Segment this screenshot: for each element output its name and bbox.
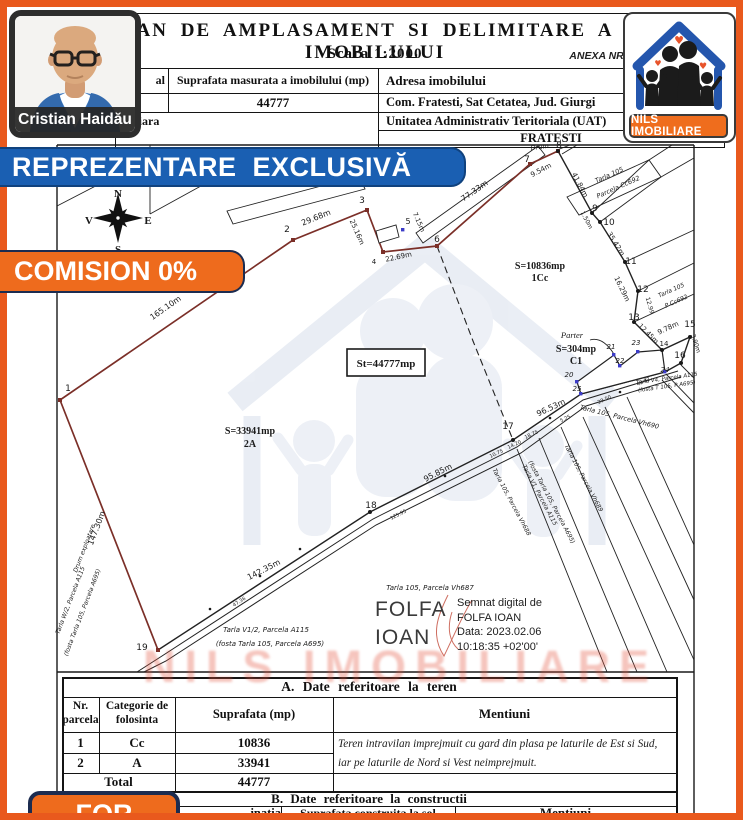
- plan-label: S=33941mp: [225, 426, 276, 437]
- plan-label: 11: [625, 257, 636, 267]
- plan-label: 7.15m: [411, 211, 427, 233]
- col-men-header: Mentiuni: [333, 699, 676, 729]
- plan-label: 18: [365, 501, 377, 511]
- plan-label: 1: [65, 384, 71, 394]
- listing-flyer: 1234567891011121314151617181920212223242…: [0, 0, 743, 820]
- col-nr-header: Nr.: [62, 699, 99, 713]
- plan-label: 12.99: [644, 296, 656, 315]
- signer-name-line2: IOAN: [375, 626, 430, 650]
- digital-signature-details: Semnat digital de FOLFA IOAN Data: 2023.…: [457, 596, 542, 654]
- row-parcel-area: 33941: [175, 753, 333, 773]
- brand-name: NILS IMOBILIARE: [629, 114, 728, 138]
- table-a-title: A. Date referitoare la teren: [62, 678, 676, 696]
- row-parcel-nr: 1: [62, 732, 99, 753]
- plan-label: 125.95: [389, 508, 407, 521]
- frame-bottom: [0, 813, 743, 820]
- carte-funciara-fragment: unciara: [115, 112, 380, 130]
- plan-label: 12: [637, 285, 648, 295]
- plan-label: 17: [502, 422, 513, 432]
- plan-label: 20: [565, 371, 574, 379]
- surface-value: 44777: [168, 93, 378, 112]
- plan-label: 35.42m: [605, 230, 626, 257]
- plan-label: 21: [607, 343, 616, 351]
- total-value: 44777: [175, 773, 333, 791]
- plan-label: (fosta Tarla 105, Parcela A695): [216, 640, 325, 648]
- svg-text:♥: ♥: [674, 34, 684, 47]
- plan-label: S=304mp: [556, 344, 597, 355]
- plan-label: 4: [372, 258, 377, 266]
- col-sup-header: Suprafata (mp): [175, 699, 333, 729]
- plan-label: C1: [570, 356, 582, 367]
- plan-label: 19: [136, 643, 148, 653]
- plan-label: 2: [284, 225, 290, 235]
- commission-banner: COMISION 0%: [0, 250, 245, 293]
- frame-left: [0, 0, 7, 820]
- compass-icon: [93, 193, 143, 243]
- signature-line: FOLFA IOAN: [457, 611, 542, 626]
- plan-label: Parter: [560, 330, 584, 340]
- plan-label: V: [85, 215, 93, 227]
- plan-label: 5: [405, 217, 410, 226]
- table-line: [676, 677, 678, 820]
- plan-label: St=44777mp: [357, 358, 416, 370]
- row-parcel-cat: Cc: [99, 732, 175, 753]
- plan-label: 165.10m: [148, 294, 183, 322]
- annex-rect: [376, 225, 399, 243]
- plan-label: 24: [661, 366, 670, 374]
- row-parcel-area: 10836: [175, 732, 333, 753]
- brand-logo: ♥ ♥ ♥ NILS IMOBILIARE: [623, 12, 736, 143]
- plan-label: S=10836mp: [515, 261, 566, 272]
- house-family-icon: ♥ ♥ ♥: [625, 14, 733, 114]
- mentiuni-line: iar pe laturile de Nord si Vest neimprej…: [338, 754, 674, 773]
- plan-label: 2A: [244, 439, 257, 450]
- plan-label: 3: [359, 196, 365, 206]
- plan-label: 22: [616, 357, 625, 365]
- col-cat-header: folosinta: [99, 713, 175, 727]
- plan-label: 25: [573, 385, 582, 393]
- plan-label: Tarla 105, Parcela Vh687: [386, 584, 474, 592]
- plan-label: 142.35m: [246, 558, 282, 582]
- plan-label: 9.78m: [656, 320, 680, 337]
- col-cat-header: Categorie de: [99, 699, 175, 713]
- total-label: Total: [62, 773, 175, 791]
- signer-name-line1: FOLFA: [375, 598, 447, 622]
- row-parcel-nr: 2: [62, 753, 99, 773]
- svg-text:♥: ♥: [654, 59, 661, 68]
- plan-label: 7: [524, 155, 530, 165]
- plan-label: 6: [434, 235, 440, 245]
- plan-label: 13: [628, 313, 639, 323]
- plan-label: 16: [674, 351, 686, 361]
- plan-label: Tarla W/2, Parcela A115: [55, 566, 87, 636]
- plan-label: 3.90m: [689, 333, 702, 354]
- signature-line: Data: 2023.02.06: [457, 625, 542, 640]
- plan-label: 14: [660, 340, 669, 348]
- agent-name: Cristian Haidău: [15, 107, 135, 132]
- surface-label: Suprafata masurata a imobilului (mp): [168, 68, 378, 93]
- plan-label: 10: [603, 218, 615, 228]
- row-parcel-cat: A: [99, 753, 175, 773]
- plan-label: 47.36: [232, 596, 247, 609]
- plan-label: N: [114, 188, 122, 200]
- plan-label: 15: [684, 320, 695, 330]
- frame-right: [736, 0, 743, 820]
- plan-label: 16.29m: [612, 275, 631, 303]
- svg-text:♥: ♥: [699, 62, 707, 72]
- plan-label: Tarla V1/2, Parcela A115: [223, 626, 309, 634]
- plan-label: 23: [632, 339, 641, 347]
- exclusive-banner: REPREZENTARE EXCLUSIVĂ: [0, 147, 466, 187]
- agent-photo: Cristian Haidău: [9, 10, 141, 138]
- signature-line: 10:18:35 +02'00': [457, 640, 542, 655]
- plan-label: 1Cc: [532, 273, 549, 284]
- plan-label: 9: [592, 204, 598, 214]
- plan-label: 29.68m: [300, 208, 332, 228]
- col-nr-header: parcela: [60, 713, 101, 727]
- signature-line: Semnat digital de: [457, 596, 542, 611]
- plan-label: 25.16m: [348, 218, 366, 246]
- plan-label: E: [144, 215, 151, 227]
- frame-top: [0, 0, 743, 7]
- plan-label: Drum exploatare: [72, 523, 97, 573]
- mentiuni-line: Teren intravilan imprejmuit cu gard din …: [338, 735, 674, 754]
- house-watermark: [235, 247, 612, 545]
- mentiuni-text: Teren intravilan imprejmuit cu gard din …: [338, 735, 674, 773]
